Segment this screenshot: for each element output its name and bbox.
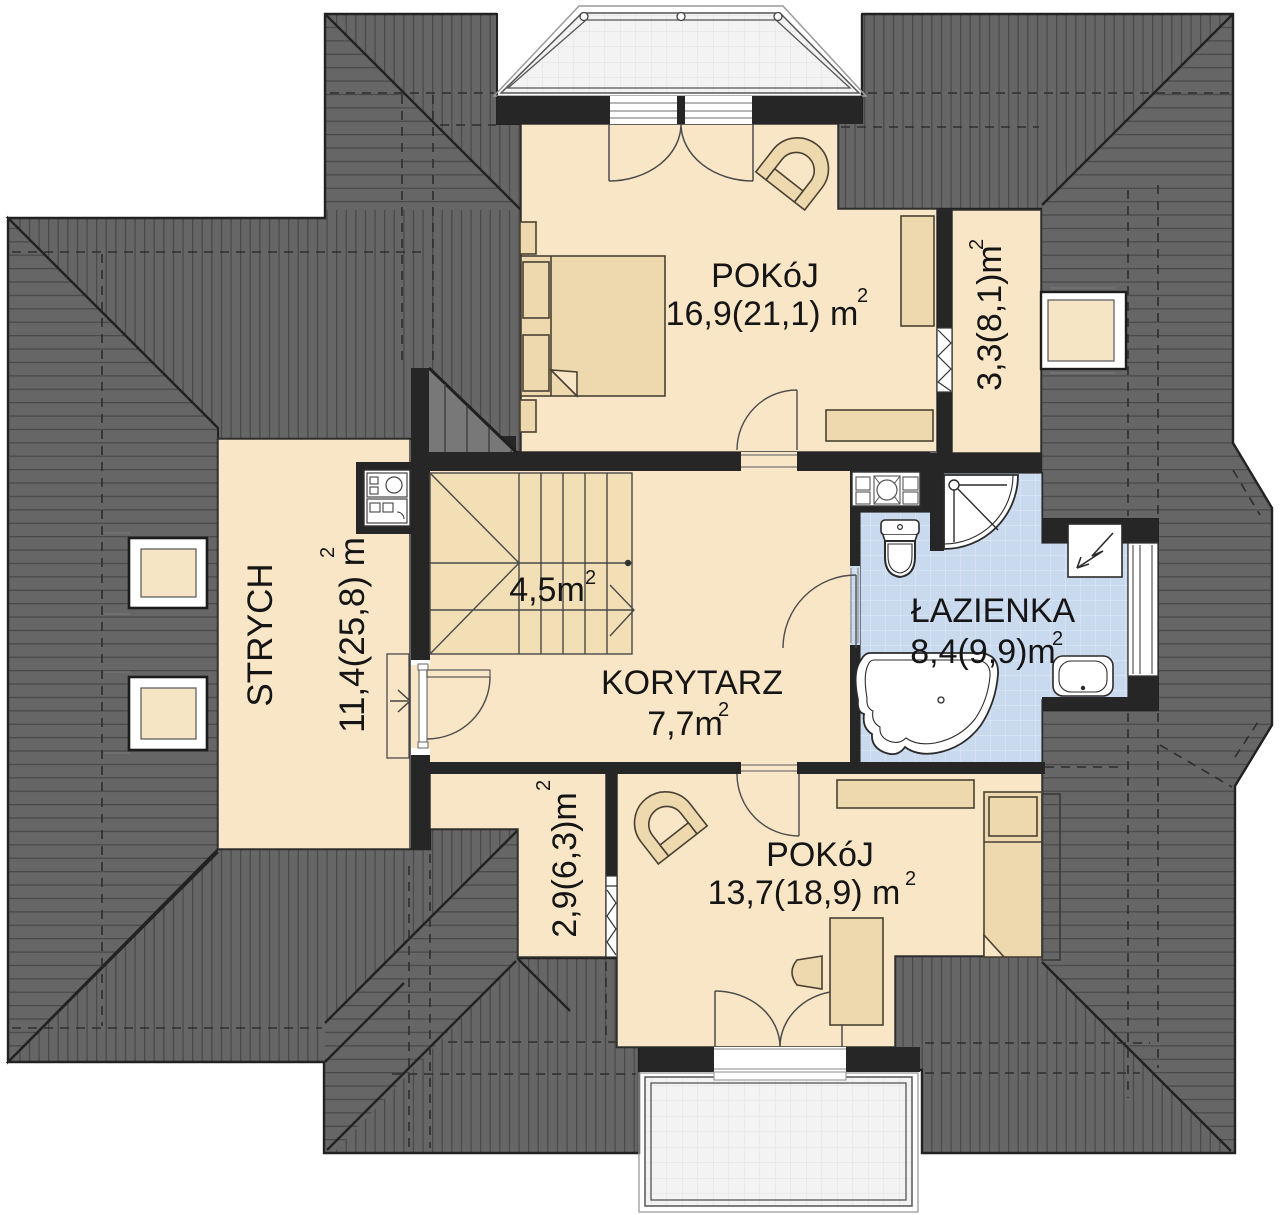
- svg-text:2: 2: [718, 699, 729, 721]
- svg-text:8,4(9,9)m: 8,4(9,9)m: [910, 633, 1056, 671]
- svg-text:STRYCH: STRYCH: [241, 563, 280, 706]
- svg-text:16,9(21,1) m: 16,9(21,1) m: [666, 295, 859, 333]
- svg-text:POKóJ: POKóJ: [711, 257, 819, 295]
- svg-text:2: 2: [905, 868, 916, 890]
- svg-text:ŁAZIENKA: ŁAZIENKA: [911, 592, 1076, 630]
- svg-text:13,7(18,9) m: 13,7(18,9) m: [708, 874, 901, 912]
- svg-text:2: 2: [857, 285, 868, 307]
- svg-text:2: 2: [966, 239, 988, 250]
- svg-text:2,9(6,3)m: 2,9(6,3)m: [546, 792, 584, 938]
- svg-text:2: 2: [585, 567, 596, 589]
- svg-text:KORYTARZ: KORYTARZ: [601, 664, 783, 702]
- svg-text:4,5m: 4,5m: [509, 571, 585, 609]
- svg-text:7,7m: 7,7m: [647, 705, 723, 743]
- svg-text:3,3(8,1)m: 3,3(8,1)m: [971, 245, 1009, 391]
- svg-text:POKóJ: POKóJ: [766, 836, 874, 874]
- svg-text:2: 2: [317, 547, 339, 558]
- svg-text:2: 2: [1052, 628, 1063, 650]
- svg-text:11,4(25,8) m: 11,4(25,8) m: [333, 537, 372, 733]
- svg-text:2: 2: [533, 780, 555, 791]
